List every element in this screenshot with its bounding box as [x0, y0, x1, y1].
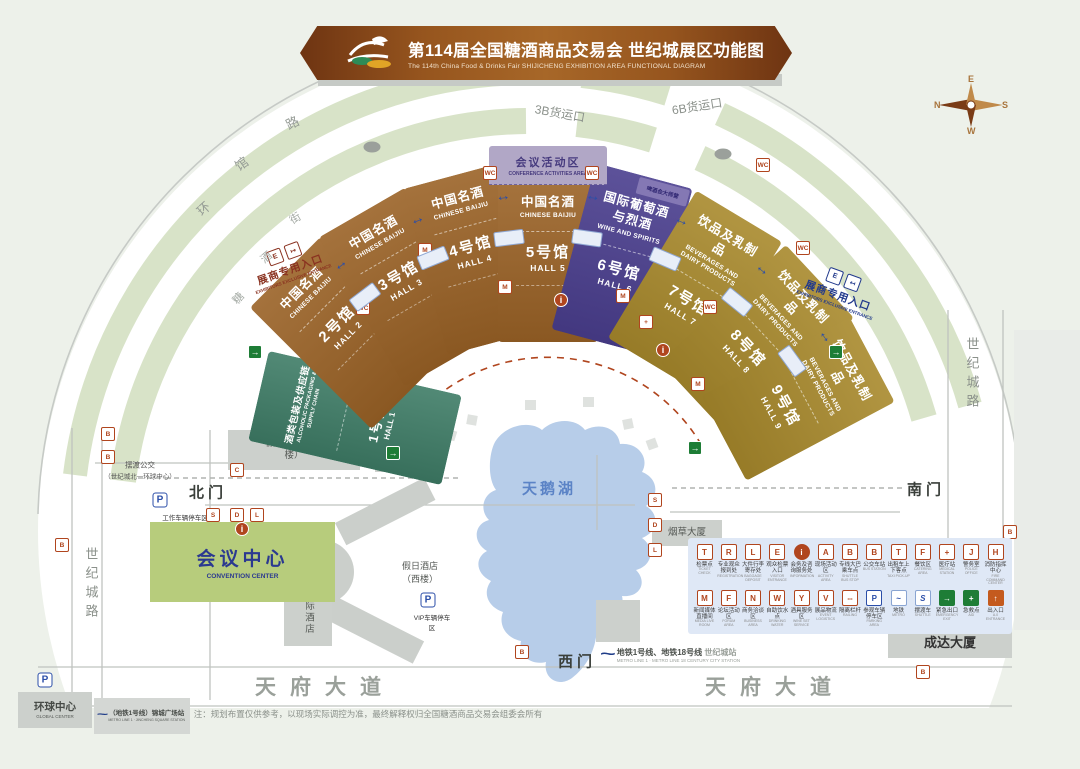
toilet-icon: WC [703, 300, 717, 314]
compass-icon: N E S W [933, 75, 1009, 140]
lake-label: 天鹅湖 [522, 478, 576, 499]
legend-icon: F [721, 590, 737, 606]
legend-item: J警务室POLICE OFFICE [960, 544, 983, 586]
exit-icon: → [386, 446, 400, 460]
legend-icon: P [866, 590, 882, 606]
legend-icon: J [963, 544, 979, 560]
legend-icon: + [939, 544, 955, 560]
global-center: 环球中心 GLOBAL CENTER [18, 692, 92, 728]
legend-row-1: T检票点TICKET CHECKR专业观众报到处REGISTRATIONL大件行… [693, 544, 1007, 586]
legend-icon: H [988, 544, 1004, 560]
legend-row-2: M新闻媒体直播间MEDIA LIVE ROOMF论坛活动区FORUM AREAN… [693, 590, 1007, 628]
legend-icon: B [842, 544, 858, 560]
parking-icon: P [153, 493, 168, 508]
toilet-icon: WC [756, 158, 770, 172]
legend-item: E观众检票入口VISITOR ENTRANCE [766, 544, 789, 586]
luggage-icon: L [250, 508, 264, 522]
legend-item: F论坛活动区FORUM AREA [717, 590, 740, 628]
tianfu-avenue-left: 天府大道 [255, 671, 395, 701]
staff-parking-label: 工作车辆停车区 [162, 512, 208, 522]
info-icon: i [656, 343, 670, 357]
toilet-icon: WC [796, 241, 810, 255]
title-banner: 第114届全国糖酒商品交易会 世纪城展区功能图 The 114th China … [300, 26, 792, 80]
disclaimer-note: 注：规划布置仅供参考，以现场实际调控为准，最终解释权归全国糖酒商品交易会组委会所… [194, 708, 543, 720]
water-icon: D [648, 518, 662, 532]
legend-icon: i [794, 544, 810, 560]
legend-item: B专线大巴乘车点SHUTTLE BUS STOP [839, 544, 862, 586]
bus-icon: B [101, 450, 115, 464]
legend-item: A现场活动区ACTIVITY AREA [814, 544, 837, 586]
rest-area-icon: M [498, 280, 512, 294]
exit-icon: → [688, 441, 702, 455]
holiday-hotel-west: 假日酒店（西楼） [396, 559, 444, 585]
legend-icon: T [697, 544, 713, 560]
svg-text:S: S [1002, 100, 1008, 110]
legend-item: H消防指挥中心FIRE COMMAND CENTER [984, 544, 1007, 586]
info-icon: i [235, 522, 249, 536]
vip-parking-label: VIP车辆停车区 [412, 612, 452, 632]
car-icon: C [230, 463, 244, 477]
legend-icon: N [745, 590, 761, 606]
scenic-icon: S [648, 493, 662, 507]
exit-icon: → [248, 345, 262, 359]
legend-icon: Y [794, 590, 810, 606]
legend-icon: A [818, 544, 834, 560]
legend-item: +急救点AID [960, 590, 983, 628]
map-legend: T检票点TICKET CHECKR专业观众报到处REGISTRATIONL大件行… [688, 538, 1012, 634]
legend-icon: F [915, 544, 931, 560]
legend-item: +医疗站MEDICAL STATION [936, 544, 959, 586]
metro-logo-icon: ~ [96, 709, 108, 723]
legend-item: T检票点TICKET CHECK [693, 544, 716, 586]
legend-item: B公交车站BUS STATION [863, 544, 886, 586]
legend-item: F餐饮区CATERING AREA [911, 544, 934, 586]
legend-icon: B [866, 544, 882, 560]
road-dot [364, 142, 381, 153]
city-block [596, 600, 640, 642]
shuttle-bus-label: 摆渡公交 （世纪城北—环球中心） [104, 460, 176, 481]
page-title: 第114届全国糖酒商品交易会 世纪城展区功能图 [408, 37, 764, 61]
bus-icon: B [55, 538, 69, 552]
page-subtitle: The 114th China Food & Drinks Fair SHIJI… [408, 63, 764, 70]
legend-item: T出租车上下客点TAXI PICK-UP [887, 544, 910, 586]
legend-icon: W [769, 590, 785, 606]
scenic-icon: S [206, 508, 220, 522]
legend-icon: + [963, 590, 979, 606]
legend-item: V展品物流EVENT LOGISTICS [814, 590, 837, 628]
medical-icon: + [639, 315, 653, 329]
legend-item: ↑出入口A.0 ENTRANCE [984, 590, 1007, 628]
info-icon: i [554, 293, 568, 307]
legend-item: ~地铁METRO [887, 590, 910, 628]
legend-icon: -- [842, 590, 858, 606]
gate-west: 西门 [558, 651, 596, 672]
metro-station-southwest: ~ （地铁1号线）锦城广场站 METRO LINE 1 · JINCHENG S… [94, 698, 190, 734]
bus-icon: B [101, 427, 115, 441]
legend-item: M新闻媒体直播间MEDIA LIVE ROOM [693, 590, 716, 628]
parking-icon: P [421, 593, 436, 608]
legend-item: W自助饮水点DRINKING WATER [766, 590, 789, 628]
century-road-left: 世纪城路 [82, 547, 101, 623]
legend-icon: → [939, 590, 955, 606]
svg-text:E: E [968, 75, 974, 84]
parking-icon: P [38, 673, 53, 688]
metro-station-west: ~ 地铁1号线、地铁18号线 世纪城站 METRO LINE 1 · METRO… [603, 646, 740, 663]
legend-icon: V [818, 590, 834, 606]
legend-icon: R [721, 544, 737, 560]
legend-icon: E [769, 544, 785, 560]
exhibition-map: 第114届全国糖酒商品交易会 世纪城展区功能图 The 114th China … [0, 0, 1080, 769]
bus-icon: B [1003, 525, 1017, 539]
luggage-icon: L [648, 543, 662, 557]
toilet-icon: WC [483, 166, 497, 180]
link-arrow-icon: ↔ [495, 187, 512, 206]
bus-icon: B [515, 645, 529, 659]
legend-item: P参观车辆停车区PARKING AREA [863, 590, 886, 628]
metro-logo-icon: ~ [599, 646, 615, 663]
legend-icon: ~ [891, 590, 907, 606]
rest-area-icon: M [616, 289, 630, 303]
svg-text:N: N [934, 100, 941, 110]
gate-south: 南门 [907, 479, 945, 500]
road-dot [715, 149, 732, 160]
svg-text:W: W [967, 126, 976, 135]
legend-item: Y酒具服务区WINE SET SERVICE [790, 590, 813, 628]
tianfu-avenue-right: 天府大道 [705, 671, 845, 701]
legend-item: L大件行李寄存处BAGGAGE DEPOSIT [742, 544, 765, 586]
legend-item: R专业观众报到处REGISTRATION [717, 544, 740, 586]
legend-item: --隔离栏杆RAILING [839, 590, 862, 628]
bus-icon: B [916, 665, 930, 679]
link-arrow-icon: ↔ [584, 187, 601, 206]
fair-logo-icon [344, 31, 398, 76]
toilet-icon: WC [585, 166, 599, 180]
rest-area-icon: M [691, 377, 705, 391]
century-road-right: 世纪城路 [963, 337, 982, 413]
legend-icon: M [697, 590, 713, 606]
legend-item: i会务及咨询服务处INFORMATION [790, 544, 813, 586]
legend-icon: T [891, 544, 907, 560]
legend-item: →紧急出口EMERGENCY EXIT [936, 590, 959, 628]
legend-icon: ↑ [988, 590, 1004, 606]
water-icon: D [230, 508, 244, 522]
gate-north: 北门 [189, 482, 227, 503]
legend-icon: L [745, 544, 761, 560]
exit-icon: → [829, 345, 843, 359]
legend-item: N商务洽谈区BUSINESS AREA [742, 590, 765, 628]
legend-item: S摆渡车SHUTTLE [911, 590, 934, 628]
legend-icon: S [915, 590, 931, 606]
